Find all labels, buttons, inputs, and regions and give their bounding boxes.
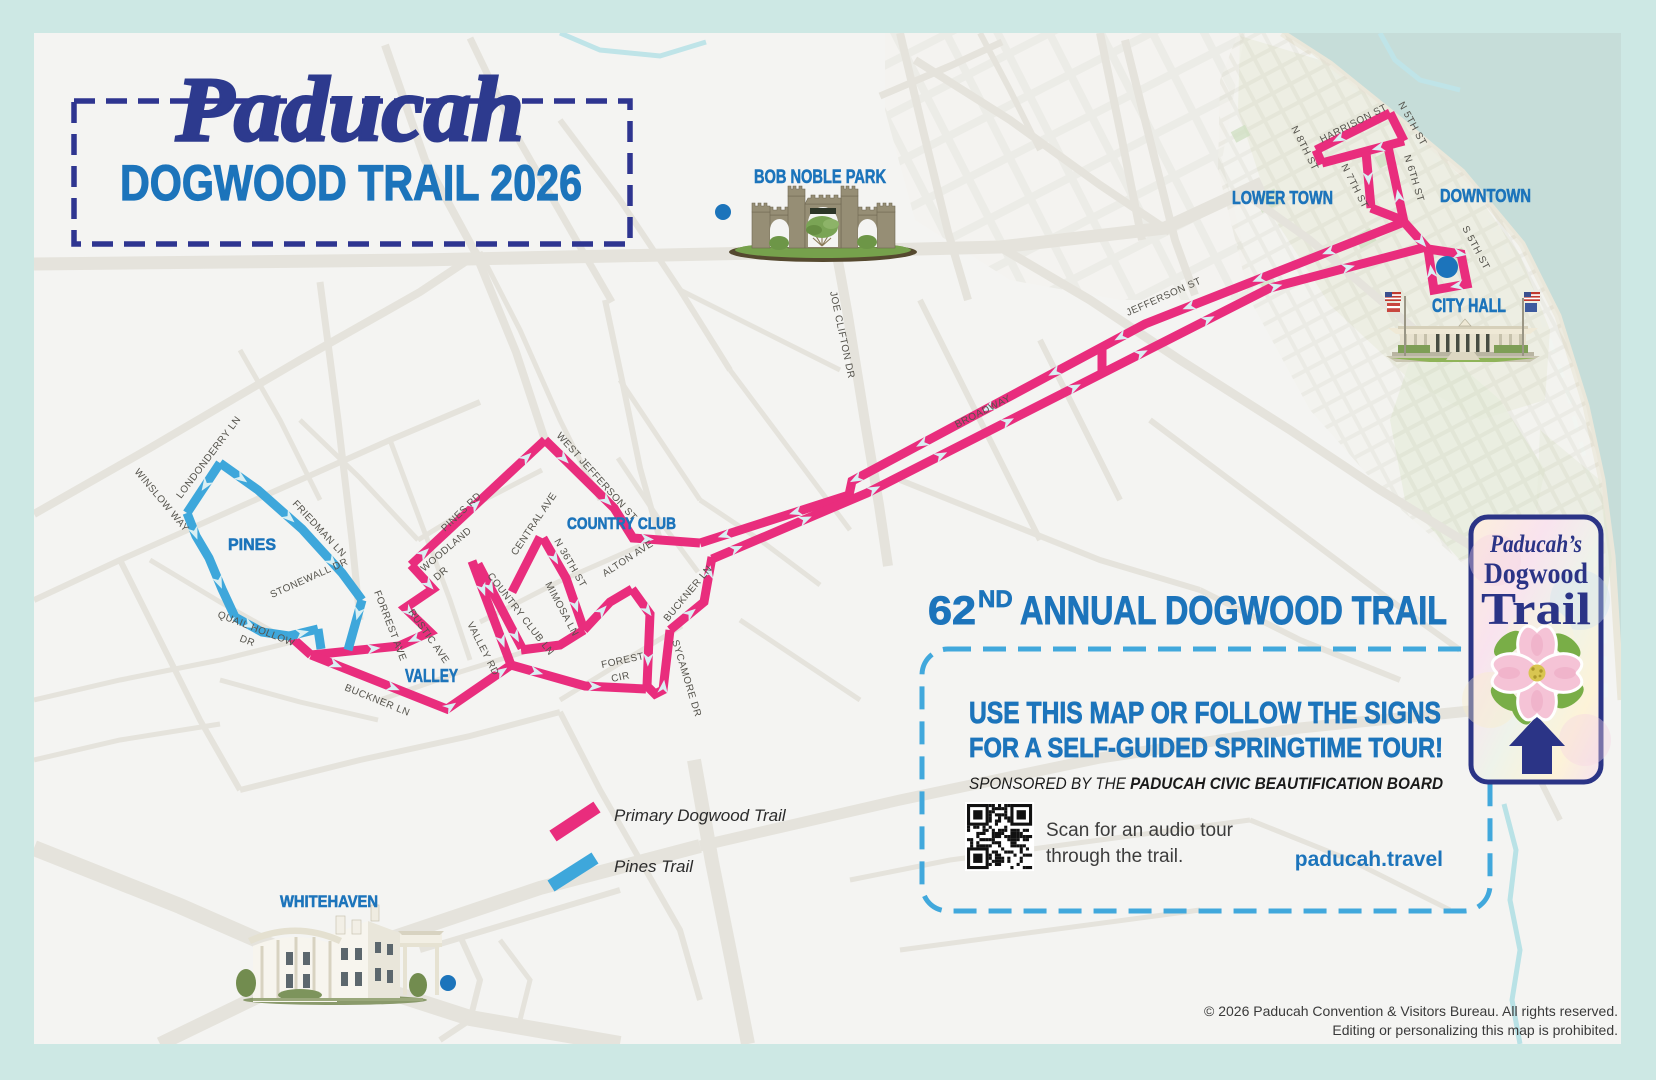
svg-text:Paducah: Paducah	[175, 58, 524, 160]
svg-text:CITY HALL: CITY HALL	[1432, 296, 1506, 317]
svg-text:Scan for an audio tour: Scan for an audio tour	[1046, 820, 1234, 841]
svg-text:PINES: PINES	[228, 535, 276, 554]
svg-text:BOB NOBLE PARK: BOB NOBLE PARK	[754, 167, 886, 188]
svg-text:COUNTRY CLUB: COUNTRY CLUB	[567, 514, 676, 533]
svg-text:USE THIS MAP OR FOLLOW THE SIG: USE THIS MAP OR FOLLOW THE SIGNS	[969, 695, 1441, 730]
svg-text:Pines Trail: Pines Trail	[614, 857, 694, 876]
svg-text:Trail: Trail	[1481, 584, 1591, 634]
svg-text:paducah.travel: paducah.travel	[1295, 848, 1443, 871]
svg-text:Editing or personalizing this: Editing or personalizing this map is pro…	[1332, 1022, 1618, 1038]
svg-text:FOR A SELF-GUIDED SPRINGTIME T: FOR A SELF-GUIDED SPRINGTIME TOUR!	[969, 732, 1443, 763]
svg-text:62: 62	[928, 589, 976, 633]
svg-text:© 2026 Paducah Convention & Vi: © 2026 Paducah Convention & Visitors Bur…	[1204, 1003, 1618, 1019]
svg-text:Primary Dogwood Trail: Primary Dogwood Trail	[614, 806, 787, 825]
svg-text:through the trail.: through the trail.	[1046, 846, 1183, 867]
svg-text:ND: ND	[978, 586, 1013, 613]
svg-text:DOWNTOWN: DOWNTOWN	[1440, 186, 1531, 206]
svg-text:ANNUAL DOGWOOD TRAIL: ANNUAL DOGWOOD TRAIL	[1020, 589, 1447, 633]
svg-text:LOWER TOWN: LOWER TOWN	[1232, 188, 1333, 208]
svg-text:Paducah’s: Paducah’s	[1489, 531, 1582, 558]
svg-text:WHITEHAVEN: WHITEHAVEN	[280, 892, 378, 911]
svg-text:VALLEY: VALLEY	[405, 666, 458, 686]
svg-text:DOGWOOD TRAIL 2026: DOGWOOD TRAIL 2026	[120, 155, 582, 211]
svg-text:SPONSORED BY THE PADUCAH CIVIC: SPONSORED BY THE PADUCAH CIVIC BEAUTIFIC…	[969, 775, 1443, 793]
